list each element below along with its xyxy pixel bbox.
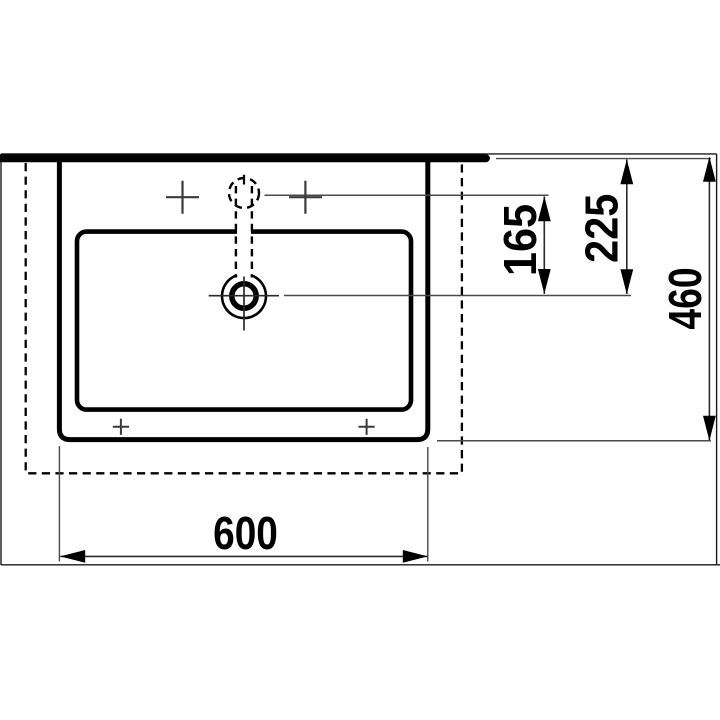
svg-text:165: 165 — [496, 204, 546, 276]
svg-text:460: 460 — [659, 267, 711, 329]
svg-text:225: 225 — [576, 194, 628, 263]
svg-text:600: 600 — [213, 508, 278, 560]
